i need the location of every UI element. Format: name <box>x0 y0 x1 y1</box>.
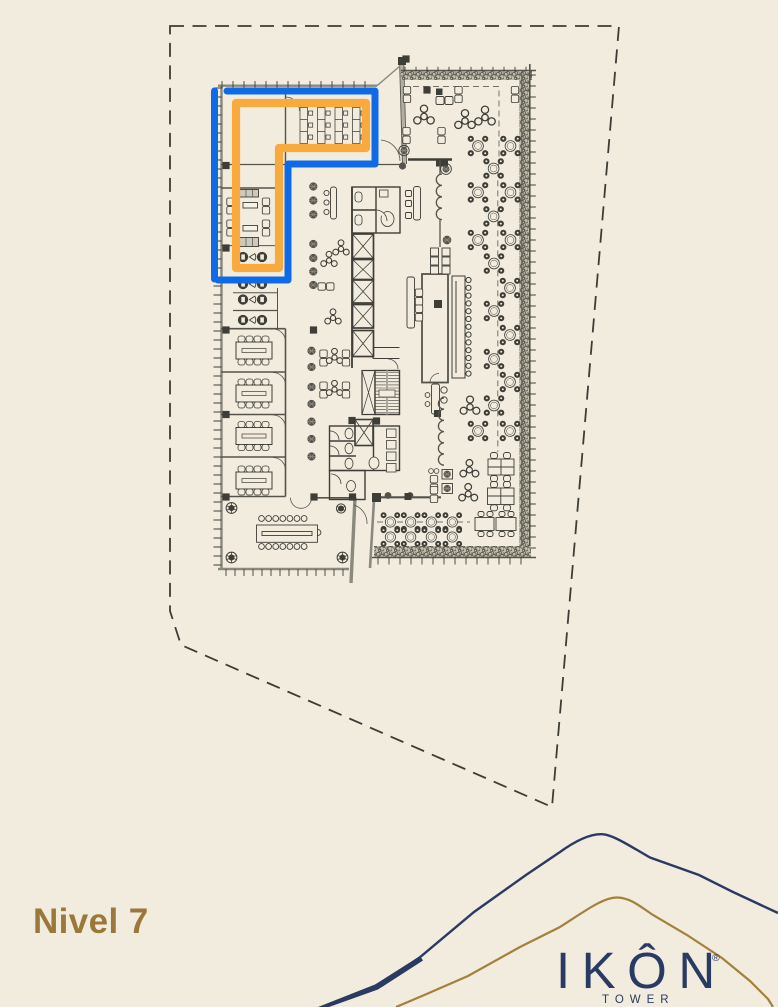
svg-text:®: ® <box>712 952 720 964</box>
svg-text:Nivel 7: Nivel 7 <box>33 902 149 941</box>
svg-text:IKÔN: IKÔN <box>556 942 727 999</box>
svg-text:TOWER: TOWER <box>602 994 675 1006</box>
